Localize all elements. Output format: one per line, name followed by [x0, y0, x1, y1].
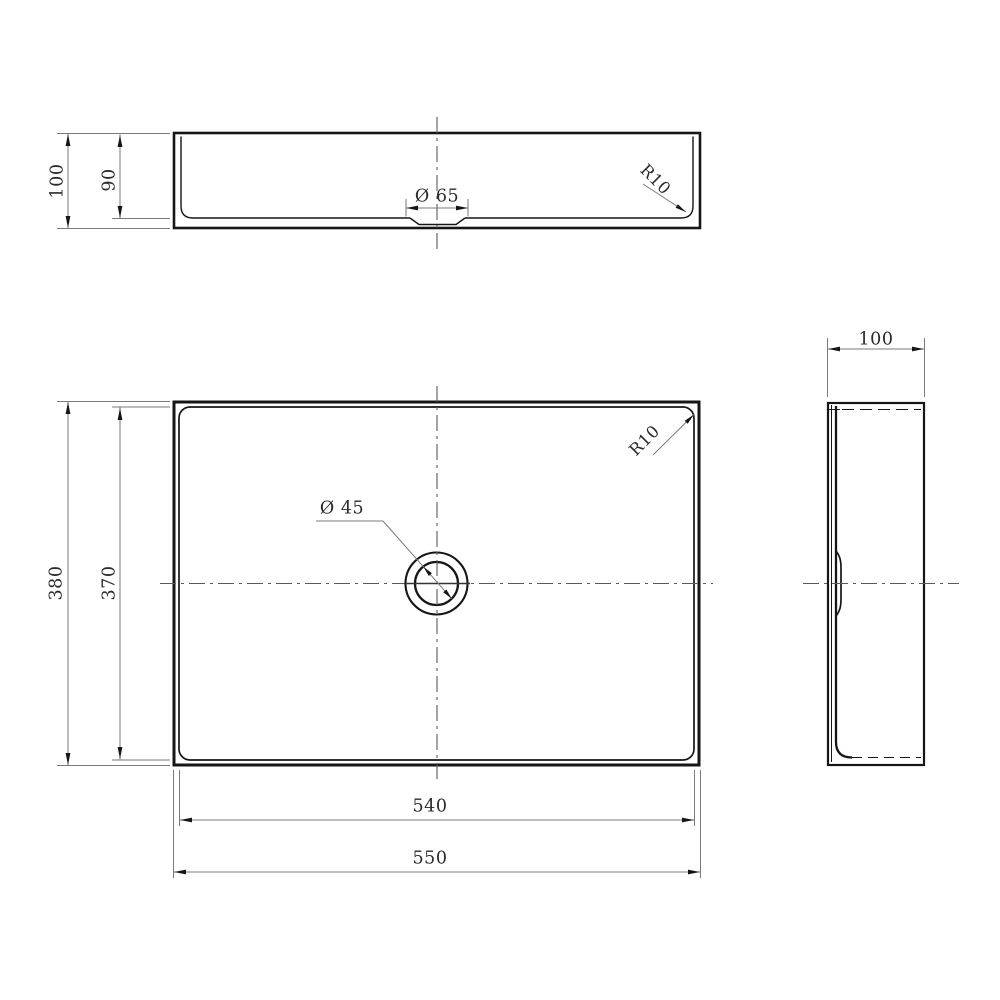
dim-label-side-overall-width: 100 [859, 331, 894, 349]
front-view [174, 117, 700, 252]
dim-label-plan-overall-width: 550 [413, 850, 448, 868]
plan-view-dimensions [57, 402, 701, 879]
dim-label-plan-overall-depth: 380 [48, 566, 66, 601]
dim-label-plan-drain-hole-diameter: Ø 45 [320, 500, 364, 518]
front-view-arrowheads [66, 134, 686, 228]
dim-label-front-drain-recess-diameter: Ø 65 [415, 188, 459, 206]
side-view [803, 403, 959, 765]
dim-label-plan-inner-width: 540 [413, 798, 448, 816]
dim-label-front-overall-height: 100 [49, 164, 67, 199]
front-view-dimensions [57, 134, 686, 229]
dim-label-plan-inner-depth: 370 [101, 566, 119, 601]
dim-label-front-inner-depth: 90 [101, 168, 119, 191]
plan-view-arrowheads [66, 402, 700, 874]
technical-drawing-page: 100 90 Ø 65 R10 380 370 Ø 45 R10 540 550… [0, 0, 1000, 1000]
technical-drawing-canvas [0, 0, 1000, 1000]
